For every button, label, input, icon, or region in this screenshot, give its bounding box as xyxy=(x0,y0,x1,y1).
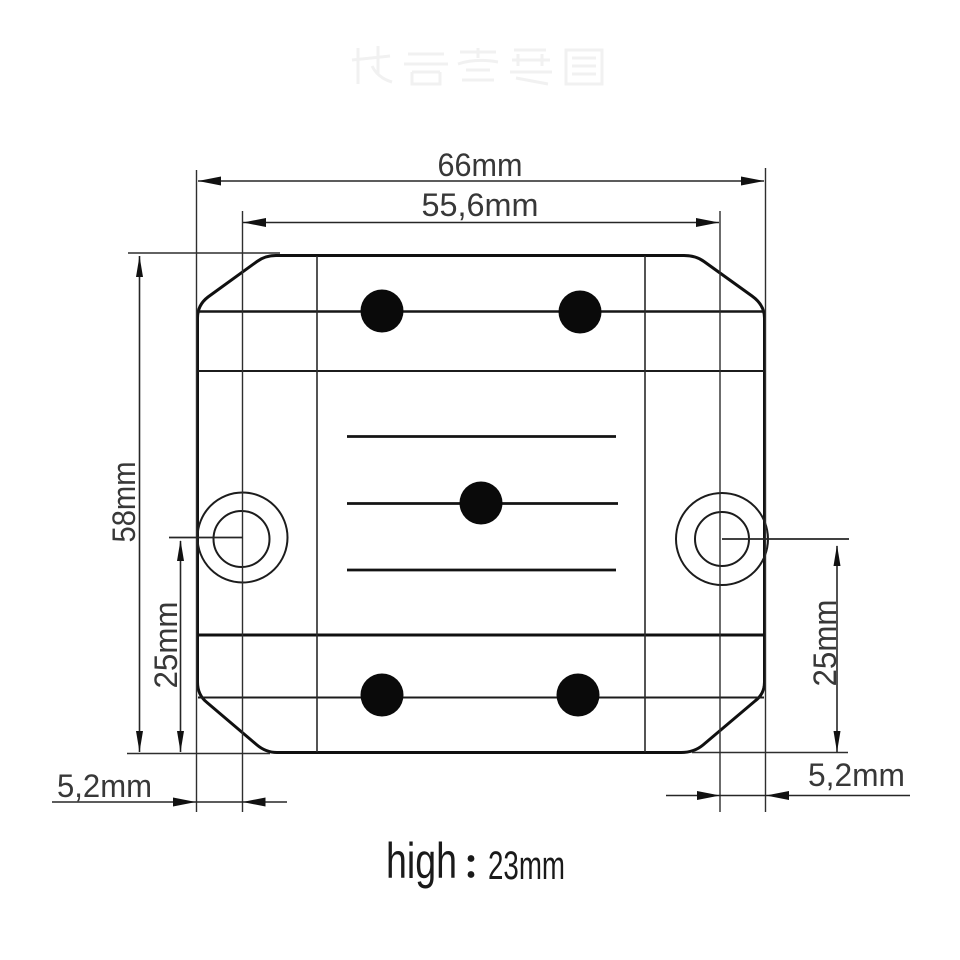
svg-text:25mm: 25mm xyxy=(148,602,184,689)
svg-text:55,6mm: 55,6mm xyxy=(422,187,539,223)
svg-text:23mm: 23mm xyxy=(488,844,565,888)
svg-text:25mm: 25mm xyxy=(807,600,843,687)
svg-text:high: high xyxy=(386,833,457,889)
svg-text:5,2mm: 5,2mm xyxy=(57,768,152,804)
svg-text:5,2mm: 5,2mm xyxy=(808,757,905,793)
svg-text:58mm: 58mm xyxy=(106,462,142,543)
svg-text:66mm: 66mm xyxy=(438,147,523,183)
